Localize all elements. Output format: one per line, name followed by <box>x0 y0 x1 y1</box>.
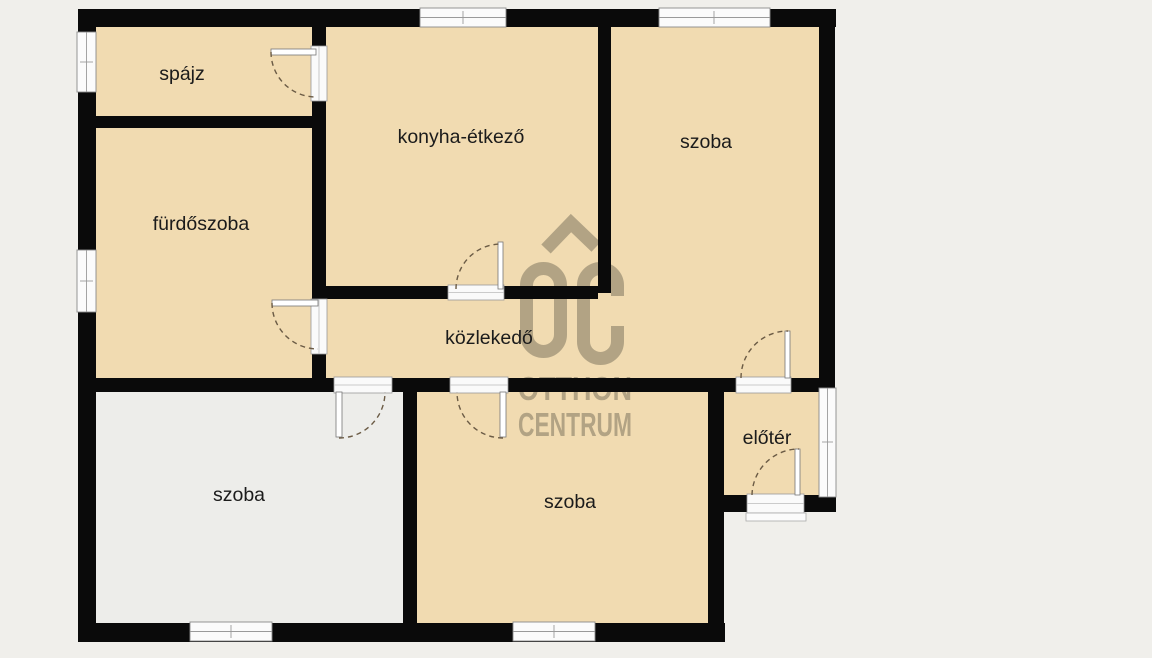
room-label-kozlekedo: közlekedő <box>445 327 533 349</box>
room-label-spajz: spájz <box>159 63 205 85</box>
door-leaf <box>271 49 316 55</box>
window-bottom-szoba-kozep <box>513 622 595 641</box>
wall-spajz-furdo <box>96 116 313 128</box>
door-leaf <box>785 331 790 378</box>
window-top-konyha <box>420 8 506 27</box>
door-leaf <box>500 392 506 437</box>
wall-bottom <box>78 623 725 642</box>
watermark-line2: CENTRUM <box>518 406 632 443</box>
wall-szoba-szoba <box>403 392 417 623</box>
wall-left <box>78 9 96 642</box>
window-top-szoba <box>659 8 770 27</box>
door-leaf <box>272 300 318 306</box>
floor-plan: OTTHON CENTRUM <box>0 0 1152 658</box>
room-label-szoba-bal-also: szoba <box>213 484 265 506</box>
room-label-eloter: előtér <box>743 427 792 449</box>
door-leaf <box>498 242 503 289</box>
window-right-eloter <box>819 388 836 497</box>
room-label-furdoszoba: fürdőszoba <box>153 213 250 235</box>
room-label-szoba-felso: szoba <box>680 131 732 153</box>
room-label-szoba-kozep-also: szoba <box>544 491 596 513</box>
door-leaf <box>795 449 800 495</box>
wall-konyha-szoba <box>598 27 611 293</box>
window-left-furdoszoba <box>77 250 96 312</box>
door-leaf <box>336 392 342 437</box>
floor-light-szoba <box>96 392 403 623</box>
entrance-step <box>746 513 806 521</box>
window-bottom-szoba-bal <box>190 622 272 641</box>
window-left-spajz <box>77 32 96 92</box>
floor-plan-canvas: OTTHON CENTRUM <box>0 0 1152 658</box>
room-label-konyha-etkezo: konyha-étkező <box>398 126 525 148</box>
